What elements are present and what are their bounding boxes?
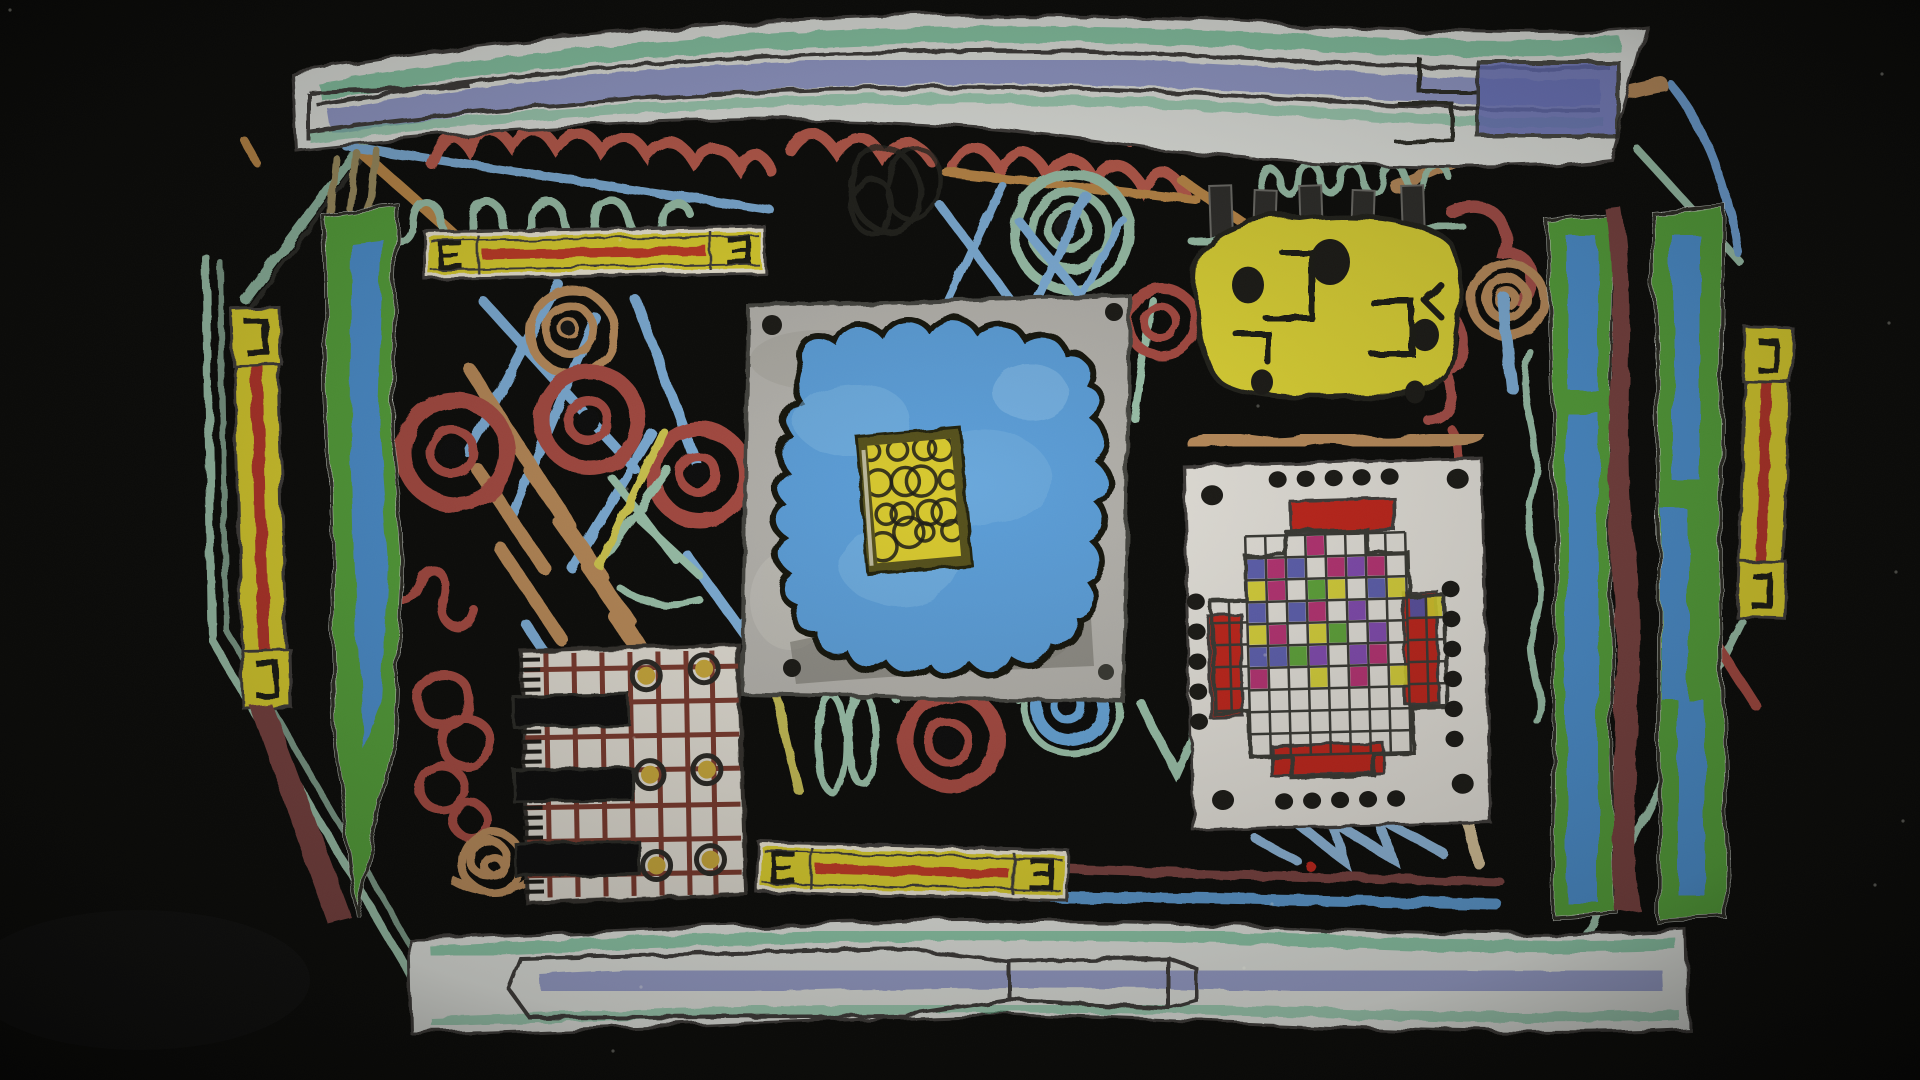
dust-speck: [639, 985, 642, 988]
vignette-overlay: [0, 0, 1920, 1080]
dust-speck: [1887, 321, 1890, 324]
artwork-photo: [0, 0, 1920, 1080]
dust-speck: [1901, 819, 1904, 822]
dust-speck: [1270, 902, 1273, 905]
dust-speck: [1256, 404, 1259, 407]
dust-speck: [618, 238, 621, 241]
artwork-canvas: [0, 0, 1920, 1080]
dust-speck: [1263, 653, 1266, 656]
dust-speck: [1249, 155, 1252, 158]
dust-speck: [1894, 570, 1897, 573]
dust-speck: [632, 736, 635, 739]
dust-speck: [1242, 966, 1245, 969]
dust-speck: [8, 8, 11, 11]
dust-speck: [625, 487, 628, 490]
dust-speck: [611, 1049, 614, 1052]
dust-speck: [1880, 72, 1883, 75]
dust-speck: [1873, 883, 1876, 886]
